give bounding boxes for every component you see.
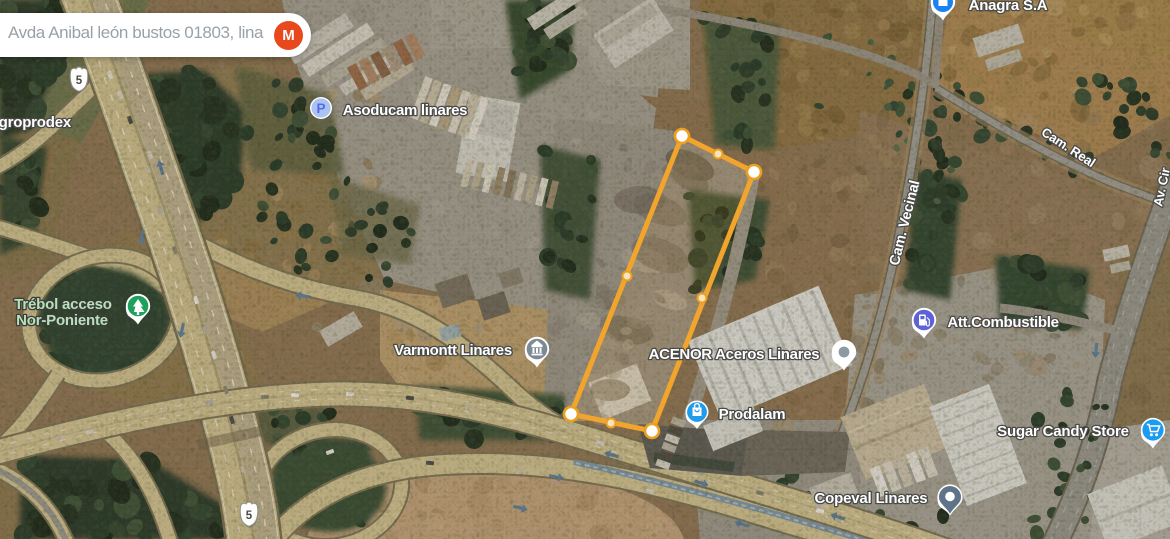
svg-text:Trébol acceso: Trébol acceso (14, 296, 111, 313)
svg-text:Varmontt Linares: Varmontt Linares (394, 342, 512, 359)
svg-text:P: P (316, 101, 325, 116)
svg-text:Prodalam: Prodalam (719, 406, 786, 423)
svg-text:Sugar Candy Store: Sugar Candy Store (997, 423, 1129, 440)
svg-text:Anagra S.A: Anagra S.A (969, 0, 1048, 14)
svg-text:Agroprodex: Agroprodex (0, 114, 72, 131)
svg-text:ACENOR Aceros Linares: ACENOR Aceros Linares (649, 346, 820, 363)
svg-text:Nor-Poniente: Nor-Poniente (16, 312, 108, 329)
svg-text:Asoducam linares: Asoducam linares (343, 102, 467, 119)
svg-text:Att.Combustible: Att.Combustible (947, 314, 1058, 331)
svg-text:5: 5 (76, 75, 83, 87)
svg-text:Copeval Linares: Copeval Linares (815, 490, 928, 507)
svg-text:5: 5 (246, 510, 253, 522)
